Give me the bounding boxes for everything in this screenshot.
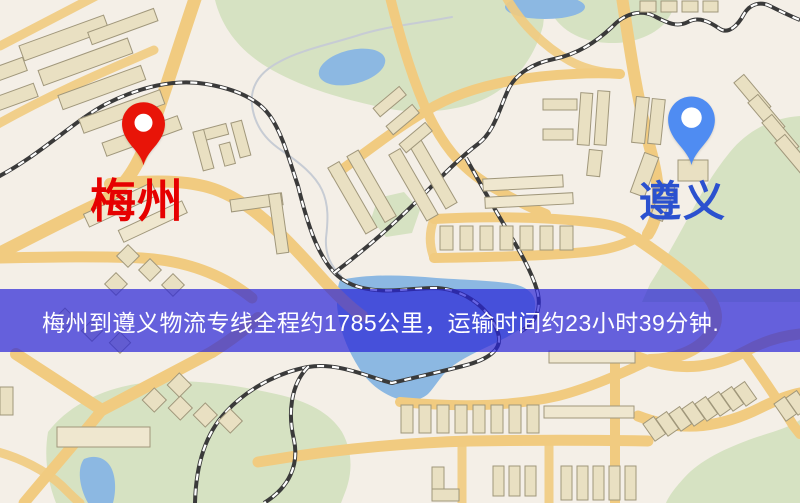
destination-pin-icon xyxy=(667,95,716,167)
route-info-banner: 梅州到遵义物流专线全程约1785公里，运输时间约23小时39分钟. xyxy=(0,289,800,352)
destination-city-label: 遵义 xyxy=(639,182,727,224)
pin-hole xyxy=(681,107,701,127)
origin-pin-icon xyxy=(121,100,166,168)
origin-city-label: 梅州 xyxy=(90,179,184,225)
route-info-text: 梅州到遵义物流专线全程约1785公里，运输时间约23小时39分钟. xyxy=(0,304,719,338)
logistics-route-map: 梅州 遵义 梅州到遵义物流专线全程约1785公里，运输时间约23小时39分钟. xyxy=(0,0,800,503)
pin-hole xyxy=(135,114,153,132)
map-background xyxy=(0,0,800,503)
